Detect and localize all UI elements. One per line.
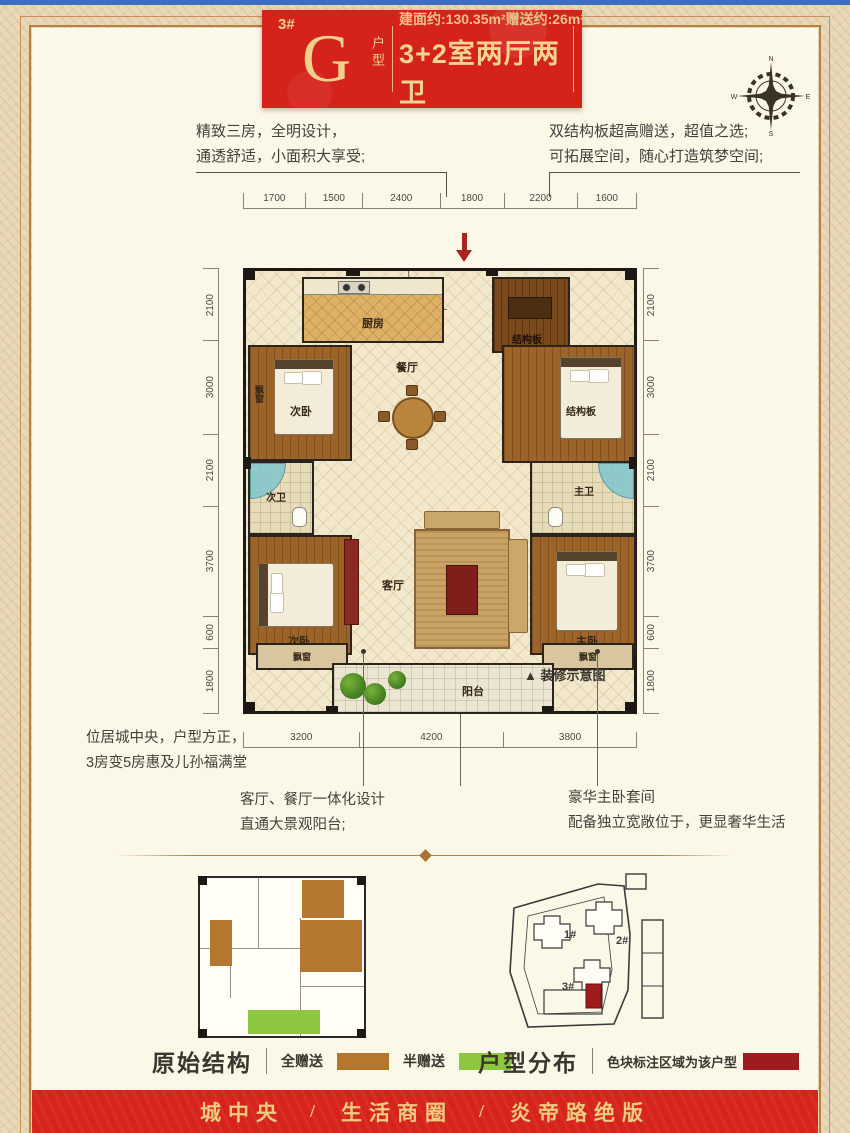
- intro-left: 精致三房，全明设计， 通透舒适，小面积大享受;: [196, 120, 365, 170]
- decoration-note: ▲ 装修示意图: [524, 665, 605, 684]
- sofa: [508, 539, 528, 633]
- sofa: [424, 511, 500, 529]
- building-label-3: 3#: [562, 981, 574, 993]
- title-divider: [266, 1048, 267, 1074]
- unit-area: 建面约:130.35m²赠送约:26m²: [399, 9, 567, 29]
- bed: [274, 359, 334, 435]
- tv-cabinet: [344, 539, 359, 625]
- room-kitchen: 厨房: [302, 277, 444, 343]
- original-structure-plan: [198, 876, 366, 1038]
- dining-table: [392, 397, 434, 439]
- unit-badge: 3# G 户型 建面约:130.35m²赠送约:26m² 3+2室两厅两卫: [262, 10, 582, 108]
- room-label-structure-mid: 结构板: [566, 403, 596, 418]
- site-plan: 1# 2# 3#: [498, 872, 683, 1037]
- plant-icon: [388, 671, 406, 689]
- highlight-unit-block: [586, 984, 601, 1008]
- leader-dot: [361, 649, 366, 654]
- room-structure-top: 结构板: [492, 277, 570, 353]
- caption-right-line2: 配备独立宽敞位于，更显奢华生活: [568, 811, 786, 836]
- gift-block-full: [210, 920, 232, 966]
- kitchen-counter: [304, 279, 442, 295]
- footer-banner: 城中央 / 生活商圈 / 炎帝路绝版: [32, 1090, 818, 1133]
- chair: [378, 411, 390, 422]
- room-label-bath-master: 主卫: [574, 483, 594, 498]
- footer-item-1: 城中央: [200, 1097, 284, 1127]
- room-label-bedroom-upper: 次卧: [290, 403, 312, 419]
- room-label-balcony: 阳台: [462, 683, 484, 699]
- legend-full-gift-label: 全赠送: [281, 1051, 323, 1071]
- room-label-dining: 餐厅: [396, 359, 418, 375]
- building-label-2: 2#: [616, 935, 628, 947]
- svg-text:S: S: [769, 131, 774, 136]
- caption-left-line1: 位居城中央，户型方正，: [86, 726, 247, 751]
- leader-dot: [595, 649, 600, 654]
- room-bedroom-lower: 次卧: [248, 535, 352, 655]
- distribution-legend-label: 色块标注区域为该户型: [607, 1052, 737, 1071]
- bed: [556, 551, 618, 631]
- intro-right-line1: 双结构板超高赠送，超值之选;: [549, 120, 763, 145]
- bed: [258, 563, 334, 627]
- caption-center-line2: 直通大景观阳台;: [240, 813, 385, 838]
- footer-separator: /: [310, 1101, 315, 1122]
- leader-line-right: [597, 652, 598, 786]
- intro-right: 双结构板超高赠送，超值之选; 可拓展空间，随心打造筑梦空间;: [549, 120, 763, 170]
- intro-left-line2: 通透舒适，小面积大享受;: [196, 145, 365, 170]
- original-structure-titlebar: 原始结构 全赠送 半赠送: [152, 1044, 511, 1078]
- dimension-column-left: 2100 3000 2100 3700 600 1800: [203, 268, 219, 714]
- room-bedroom-upper: 次卧 飘窗: [248, 345, 352, 461]
- room-structure-mid: 结构板: [502, 345, 636, 463]
- bay-window-label: 飘窗: [293, 650, 311, 663]
- unit-type-label: 户型: [368, 36, 387, 70]
- footer-item-2: 生活商圈: [341, 1097, 453, 1127]
- leader-line-center2: [460, 714, 461, 786]
- desk: [508, 297, 552, 319]
- svg-text:W: W: [731, 94, 738, 101]
- footer-separator: /: [479, 1101, 484, 1122]
- room-bath-secondary: 次卫: [248, 461, 314, 535]
- top-blue-strip: [0, 0, 850, 5]
- room-master: 主卧: [530, 535, 636, 655]
- room-label-living: 客厅: [382, 577, 404, 593]
- room-label-kitchen: 厨房: [362, 315, 384, 331]
- room-label-structure-top: 结构板: [512, 331, 542, 346]
- caption-right-line1: 豪华主卧套间: [568, 786, 786, 811]
- dimension-column-right: 2100 3000 2100 3700 600 1800: [643, 268, 659, 714]
- coffee-table: [446, 565, 478, 615]
- dimension-row-top: 1700 1500 2400 1800 2200 1600: [243, 193, 637, 209]
- toilet: [292, 507, 307, 527]
- gift-block-half: [248, 1010, 320, 1034]
- stove-icon: [338, 281, 370, 294]
- distribution-titlebar: 户型分布 色块标注区域为该户型: [478, 1044, 799, 1078]
- svg-text:N: N: [768, 56, 773, 63]
- caption-center-line1: 客厅、餐厅一体化设计: [240, 788, 385, 813]
- plant-icon: [364, 683, 386, 705]
- distribution-legend-swatch: [743, 1053, 799, 1070]
- intro-right-line2: 可拓展空间，随心打造筑梦空间;: [549, 145, 763, 170]
- room-balcony: 阳台: [332, 663, 554, 714]
- caption-left: 位居城中央，户型方正， 3房变5房惠及儿孙福满堂: [86, 726, 247, 777]
- floor-plan: 餐厅 厨房 结构板 次卧 飘窗 结构板 次卫 主卫 次卧: [243, 268, 637, 714]
- toilet: [548, 507, 563, 527]
- distribution-title: 户型分布: [478, 1044, 578, 1078]
- title-divider: [592, 1048, 593, 1074]
- unit-letter: G: [302, 12, 351, 104]
- chair: [406, 385, 418, 396]
- intro-left-line1: 精致三房，全明设计，: [196, 120, 365, 145]
- unit-specs: 建面约:130.35m²赠送约:26m² 3+2室两厅两卫: [392, 26, 574, 92]
- building-label-1: 1#: [564, 929, 576, 941]
- gift-block-full: [300, 920, 362, 972]
- caption-center: 客厅、餐厅一体化设计 直通大景观阳台;: [240, 788, 385, 839]
- entry-arrow-icon: [456, 233, 472, 267]
- svg-text:E: E: [806, 94, 811, 101]
- dimension-row-bottom: 3200 4200 3800: [243, 732, 637, 748]
- chair: [406, 439, 418, 450]
- room-label-bath-secondary: 次卫: [266, 489, 286, 504]
- caption-right: 豪华主卧套间 配备独立宽敞位于，更显奢华生活: [568, 786, 786, 837]
- unit-layout: 3+2室两厅两卫: [399, 32, 567, 110]
- legend-half-gift-label: 半赠送: [403, 1051, 445, 1071]
- original-structure-title: 原始结构: [152, 1044, 252, 1078]
- legend-full-gift-swatch: [337, 1053, 389, 1070]
- bay-window-label-left: 飘窗: [253, 385, 266, 403]
- gift-block-full: [302, 880, 344, 918]
- chair: [434, 411, 446, 422]
- leader-line-center: [363, 652, 364, 786]
- room-bath-master: 主卫: [530, 461, 636, 535]
- caption-left-line2: 3房变5房惠及儿孙福满堂: [86, 751, 247, 776]
- bed: [560, 357, 622, 439]
- footer-item-3: 炎帝路绝版: [510, 1097, 650, 1127]
- living-rug: [414, 529, 510, 649]
- building-number: 3#: [278, 16, 295, 33]
